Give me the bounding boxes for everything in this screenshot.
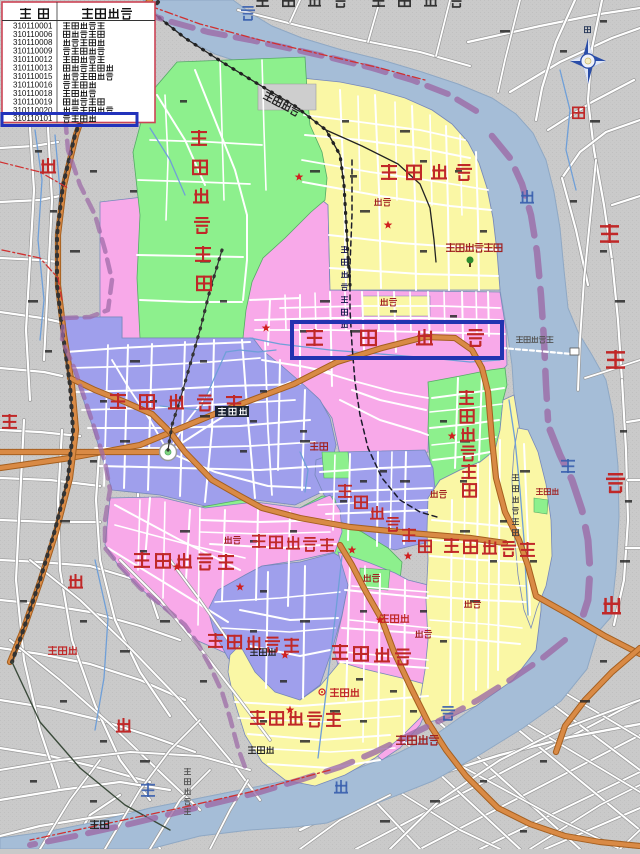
svg-text:310110101: 310110101 — [13, 114, 53, 123]
